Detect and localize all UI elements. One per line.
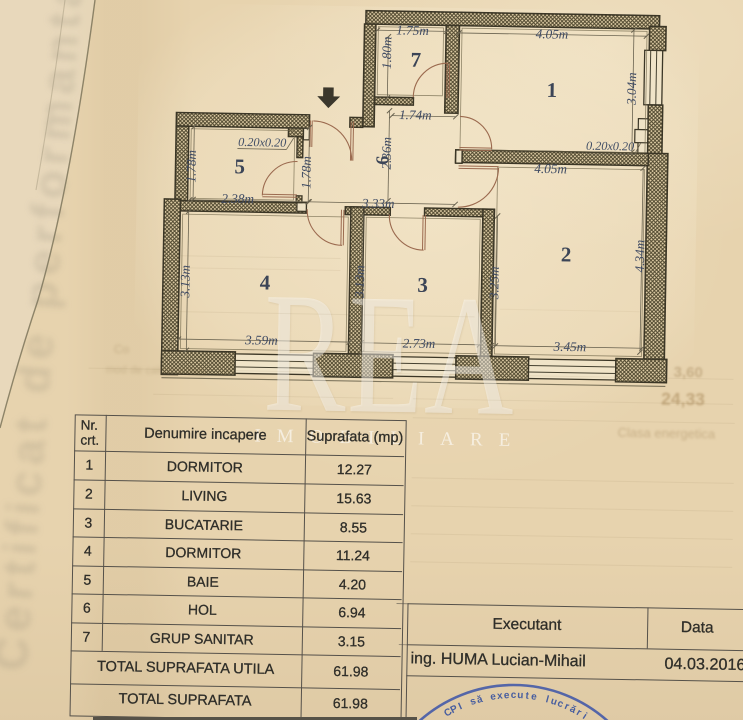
svg-text:1.74m: 1.74m xyxy=(399,107,432,123)
svg-text:3.04m: 3.04m xyxy=(624,72,640,106)
svg-text:1.80m: 1.80m xyxy=(379,36,395,69)
svg-text:1: 1 xyxy=(546,78,557,102)
svg-text:4.05m: 4.05m xyxy=(536,26,569,42)
svg-text:2: 2 xyxy=(561,242,572,266)
svg-text:3.33m: 3.33m xyxy=(361,195,395,211)
svg-text:5: 5 xyxy=(234,154,245,178)
svg-text:6: 6 xyxy=(372,156,392,165)
svg-text:0.20x0.20: 0.20x0.20 xyxy=(586,139,634,154)
svg-text:3.45m: 3.45m xyxy=(553,339,587,355)
svg-text:1.75m: 1.75m xyxy=(396,22,429,38)
svg-text:7: 7 xyxy=(410,48,421,72)
svg-text:1.78m: 1.78m xyxy=(298,156,314,189)
svg-text:2.38m: 2.38m xyxy=(221,191,254,207)
svg-text:4.05m: 4.05m xyxy=(534,161,567,177)
svg-text:1.78m: 1.78m xyxy=(183,150,199,183)
svg-text:4.34m: 4.34m xyxy=(632,240,648,273)
svg-text:3.13m: 3.13m xyxy=(177,265,193,299)
svg-text:0.20x0.20: 0.20x0.20 xyxy=(238,135,286,150)
